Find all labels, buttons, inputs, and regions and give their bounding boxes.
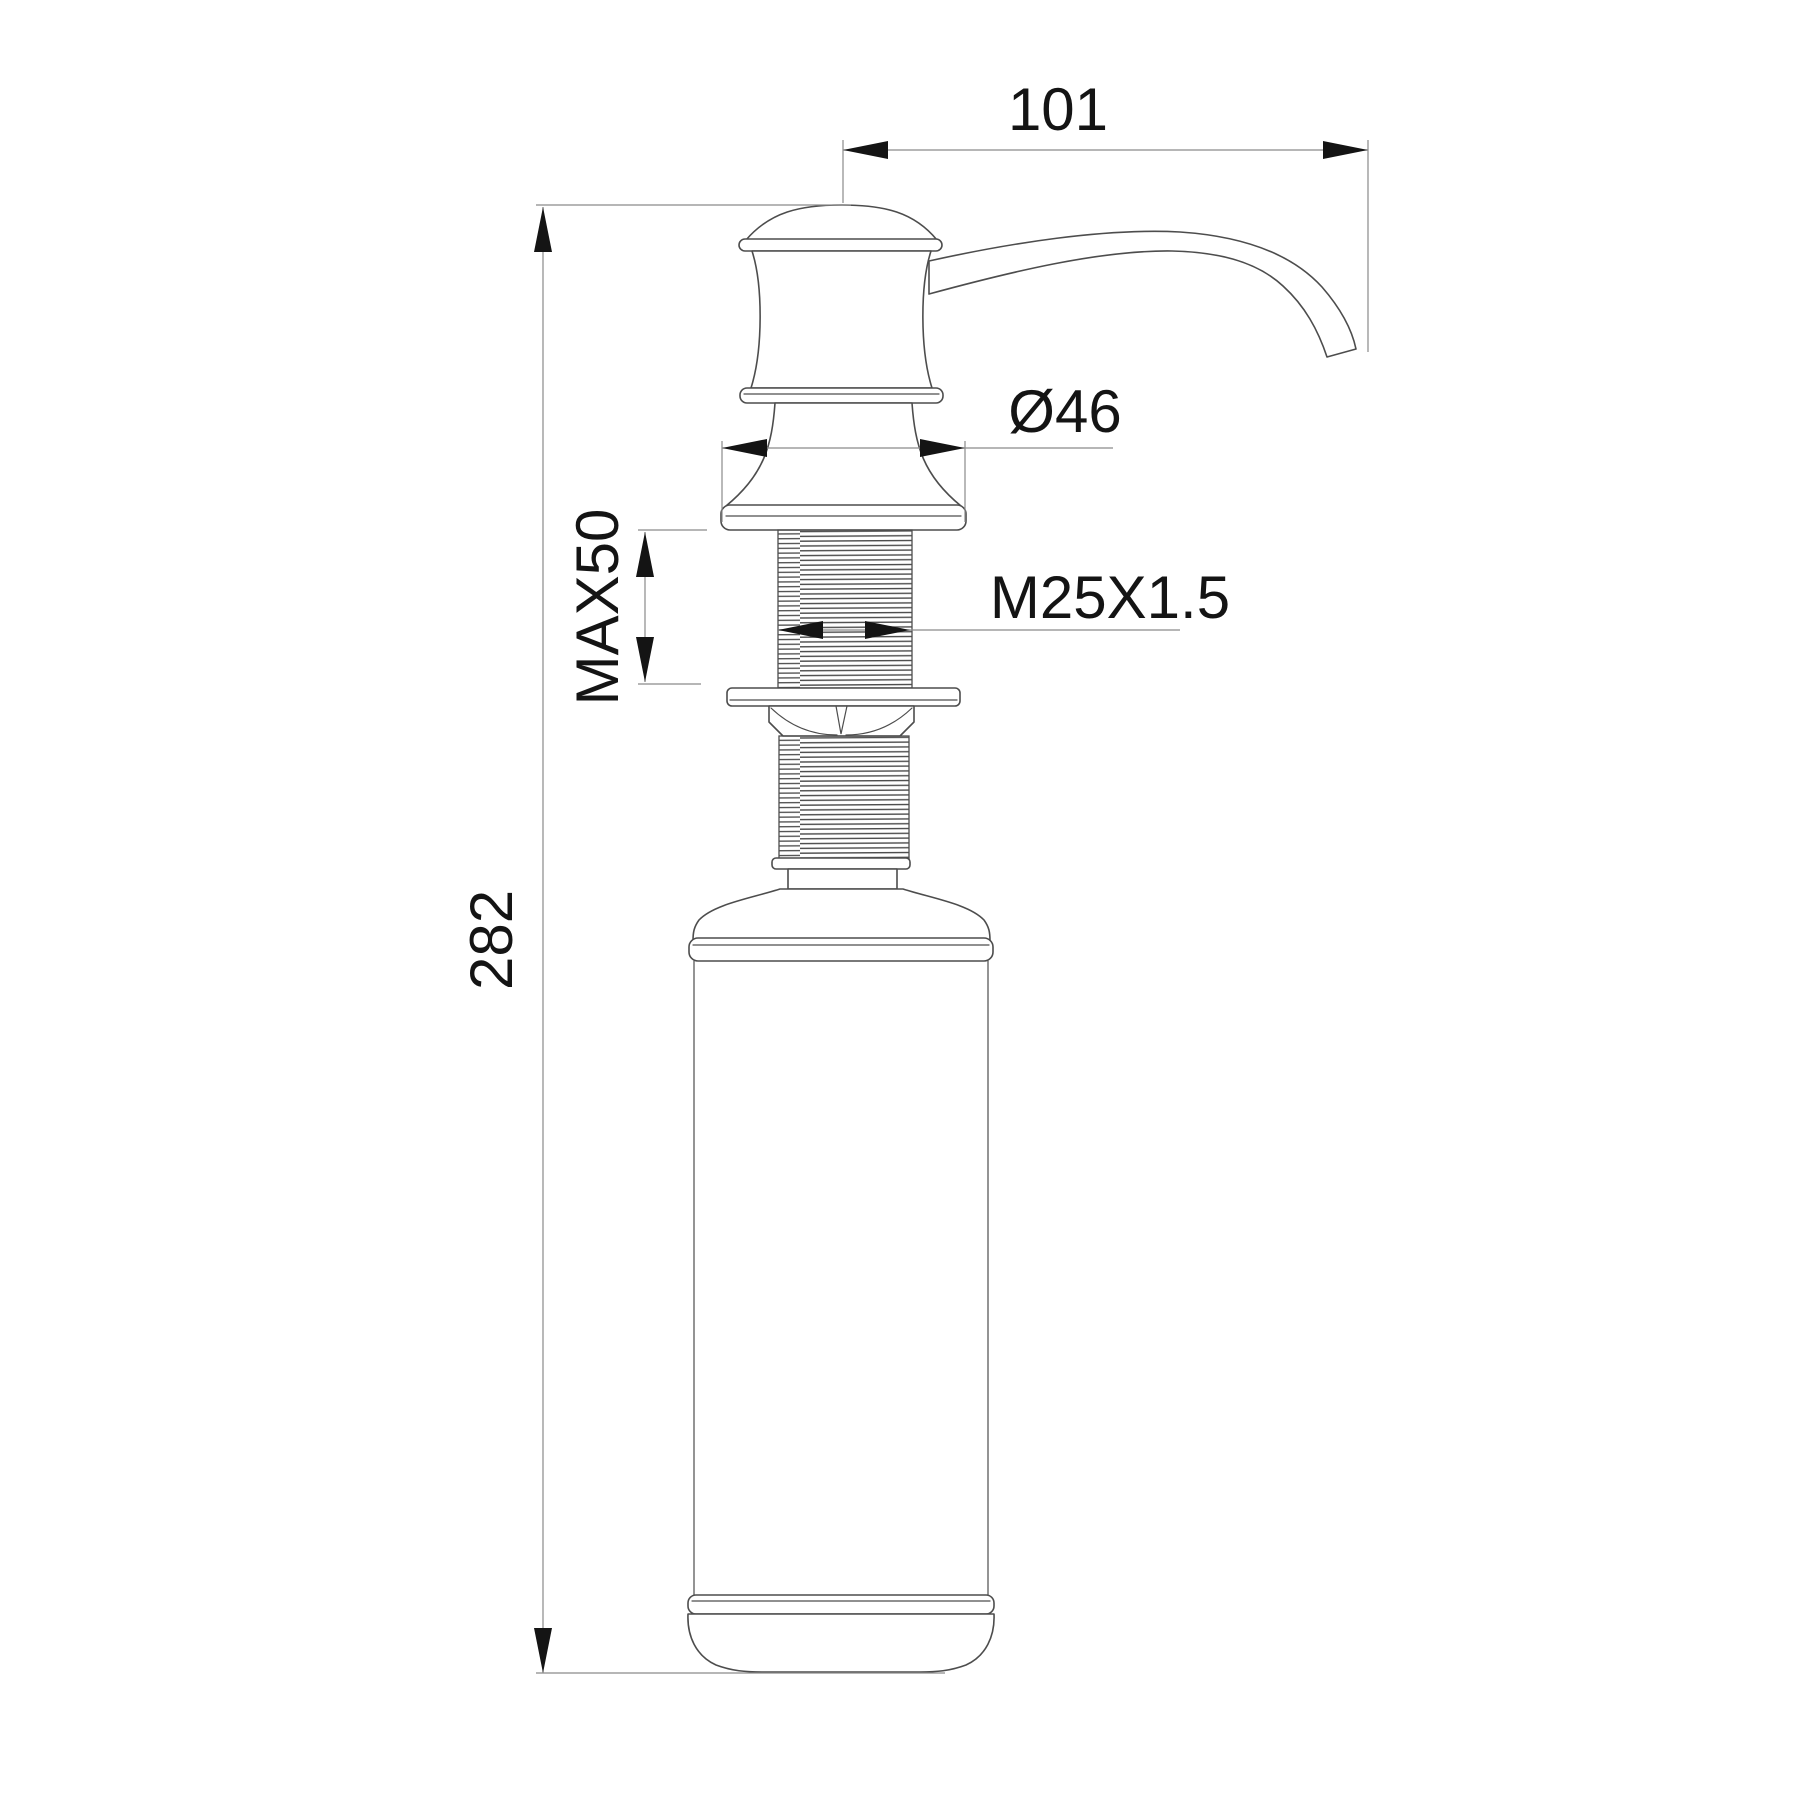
dome-brim <box>739 239 942 251</box>
technical-drawing-page: 101 282 Ø46 MAX50 M25X1.5 <box>0 0 1800 1800</box>
pump-head-waist <box>751 251 932 388</box>
dim-d46-arrow-right <box>920 439 965 457</box>
bottle-shoulder <box>693 889 990 941</box>
dim-max50-arrow-top <box>636 532 654 577</box>
bottom-cap <box>688 1614 994 1672</box>
pump-head-dome <box>746 205 937 240</box>
dim-282-arrow-bottom <box>534 1628 552 1673</box>
dim-282-arrow-top <box>534 207 552 252</box>
dim-101-arrow-right <box>1323 141 1368 159</box>
dim-d46-label: Ø46 <box>1008 378 1121 445</box>
waist-brim <box>740 388 943 403</box>
dim-101-label: 101 <box>1008 76 1108 143</box>
dim-282-label: 282 <box>458 890 525 990</box>
dim-101-arrow-left <box>843 141 888 159</box>
dimension-max-mounting: MAX50 <box>564 509 707 706</box>
bell-brim <box>721 505 966 530</box>
soap-dispenser-drawing: 101 282 Ø46 MAX50 M25X1.5 <box>0 0 1800 1800</box>
thread-shank-upper <box>778 530 912 688</box>
bottle-neck <box>788 869 897 889</box>
thread-collar <box>772 858 910 869</box>
dim-d46-arrow-left <box>722 439 767 457</box>
thread-shank-lower <box>779 736 909 860</box>
dim-thread-label: M25X1.5 <box>990 564 1230 631</box>
dim-max50-label: MAX50 <box>564 509 631 706</box>
dim-max50-arrow-bottom <box>636 637 654 682</box>
spout <box>929 231 1356 357</box>
mounting-flange <box>727 688 960 706</box>
bottom-bead <box>688 1595 994 1614</box>
shoulder-bead <box>689 938 993 961</box>
